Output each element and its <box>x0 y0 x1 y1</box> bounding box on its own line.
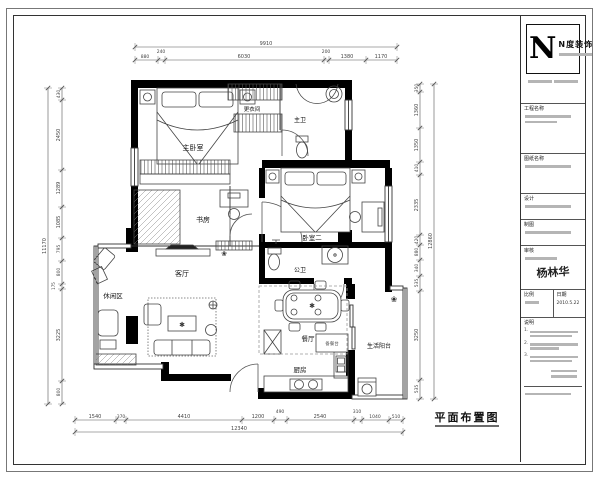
dim-label: 430 <box>56 90 62 99</box>
note-number: 3. <box>524 354 528 358</box>
company-logo: N N度装饰 <box>526 24 580 74</box>
dim-label: 2540 <box>314 414 327 420</box>
scale-cell: 比例 <box>521 290 553 317</box>
contact-bar <box>528 80 552 83</box>
dim-label: 535 <box>414 279 420 288</box>
dim-label: 240 <box>157 49 166 55</box>
wardrobe <box>140 174 230 184</box>
tv-cabinet <box>216 241 252 250</box>
bedroom2-furniture <box>266 168 384 232</box>
tv-console <box>156 249 210 256</box>
date-cell: 日期 2010.5.22 <box>553 290 586 317</box>
designer-value-bar <box>525 205 571 208</box>
room-label-living: 客厅 <box>175 269 189 278</box>
dim-label: 795 <box>56 245 62 254</box>
dim-label: 410 <box>414 164 420 173</box>
project-name-row: 工程名称 <box>521 104 585 154</box>
closet <box>234 114 282 132</box>
dim-label: 370 <box>117 414 126 420</box>
dim-label: 510 <box>392 414 401 420</box>
note-number: 1. <box>524 329 528 333</box>
note-number: 2. <box>524 342 528 346</box>
notes-label: 说明 <box>524 320 582 326</box>
room-label-prep-counter: 备餐台 <box>325 340 339 347</box>
plant-icon: ❀ <box>221 250 227 258</box>
room-label-study: 书房 <box>196 215 210 224</box>
dim-label: 3250 <box>414 329 420 342</box>
room-label-bedroom2: 卧室二 <box>302 233 322 242</box>
room-label-kitchen: 厨房 <box>294 365 307 374</box>
dim-label: 880 <box>414 248 420 257</box>
dimension-lines <box>44 43 438 436</box>
note-item: 1. <box>524 329 582 339</box>
scale-date-row: 比例 日期 2010.5.22 <box>521 290 585 318</box>
date-label: 日期 <box>557 292 583 298</box>
contact-line <box>524 77 582 86</box>
drafter-row: 制图 <box>521 220 585 246</box>
dim-label: 800 <box>56 268 62 277</box>
contact-bar <box>554 80 578 83</box>
table-star-icon: ✱ <box>179 321 185 329</box>
dim-label: 3225 <box>56 329 62 342</box>
dim-label: 1540 <box>89 414 102 420</box>
dim-label: 490 <box>276 409 285 415</box>
wardrobe <box>140 160 230 174</box>
table-star-icon: ✱ <box>309 302 315 310</box>
date-value: 2010.5.22 <box>557 301 583 306</box>
room-label-public-bath: 公卫 <box>294 267 306 274</box>
room-label-master-bedroom: 主卧室 <box>183 143 204 152</box>
dim-label: 880 <box>141 54 150 60</box>
room-label-dressing: 更衣间 <box>244 105 261 113</box>
drawing-label: 图纸名称 <box>524 156 582 162</box>
signature: 杨林华 <box>524 261 583 281</box>
floorplan-drawing: ❀ ❀ ✱ ✱ 主卧室 更衣间 主卫 书房 卧室二 公卫 客厅 休闲区 餐厅 厨… <box>0 0 600 480</box>
title-block-logo-row: N N度装饰 <box>521 16 585 104</box>
drawing-title-text: 平面布置图 <box>435 410 500 424</box>
note-item: 2. <box>524 342 582 352</box>
sheet-number-row <box>524 386 582 396</box>
dim-label: 310 <box>353 409 362 415</box>
logo-letter: N <box>529 34 556 64</box>
project-label: 工程名称 <box>524 106 582 112</box>
plant-icon: ❀ <box>391 295 398 304</box>
room-label-balcony: 生活阳台 <box>367 342 391 350</box>
washing-machine <box>358 378 376 396</box>
notes-row: 说明 1. 2. 3. <box>521 318 585 462</box>
checker-value-bar <box>525 257 557 260</box>
room-label-dining: 餐厅 <box>302 334 316 343</box>
dim-label: 2450 <box>56 129 62 142</box>
dim-label: 1200 <box>252 414 265 420</box>
dim-label: 2335 <box>414 199 420 212</box>
dim-label: 535 <box>414 385 420 394</box>
logo-subtext-bar <box>559 53 591 56</box>
dim-label: 340 <box>414 264 420 273</box>
drawing-value-bar <box>525 165 571 168</box>
dim-label: 1289 <box>56 182 62 195</box>
title-block: N N度装饰 工程名称 图纸名称 设计 制图 审核 杨林华 比例 <box>520 16 585 462</box>
dim-label: 12340 <box>231 426 247 432</box>
project-value-bar <box>525 115 571 118</box>
study-furniture <box>134 190 248 244</box>
dim-label: 6030 <box>238 54 251 60</box>
dim-label: 1380 <box>341 54 354 60</box>
tv <box>166 245 198 249</box>
designer-row: 设计 <box>521 194 585 220</box>
checker-row: 审核 杨林华 <box>521 246 585 290</box>
sheet-number-bar <box>525 393 571 396</box>
drafter-label: 制图 <box>524 222 582 228</box>
dim-label: 1170 <box>375 54 388 60</box>
drafter-value-bar <box>525 231 571 234</box>
dim-label: 350 <box>414 84 420 93</box>
dim-label: 4410 <box>178 414 191 420</box>
checker-label: 审核 <box>524 248 582 254</box>
dim-label: 800 <box>56 388 62 397</box>
closet <box>228 84 282 100</box>
dim-label: 420 <box>414 236 420 245</box>
note-item: 3. <box>524 354 582 364</box>
dim-label: 1350 <box>414 139 420 152</box>
dim-label: 11170 <box>42 238 48 254</box>
company-name: N度装饰 <box>558 39 593 50</box>
room-label-leisure: 休闲区 <box>103 291 123 300</box>
designer-label: 设计 <box>524 196 582 202</box>
notes-signoff-bars <box>550 370 582 378</box>
dim-label: 1360 <box>414 104 420 117</box>
scale-value-bar <box>525 301 539 304</box>
project-value-bar <box>525 121 557 124</box>
drawing-name-row: 图纸名称 <box>521 154 585 194</box>
drawing-title: 平面布置图 <box>435 410 500 426</box>
dim-label: 1085 <box>56 216 62 229</box>
dim-label: 1040 <box>369 414 381 420</box>
scale-label: 比例 <box>524 292 550 298</box>
dim-label: 175 <box>51 282 56 290</box>
room-label-master-bath: 主卫 <box>294 116 306 124</box>
dim-label: 9910 <box>260 41 273 47</box>
dim-label: 12860 <box>428 233 434 249</box>
dim-label: 200 <box>322 49 331 55</box>
